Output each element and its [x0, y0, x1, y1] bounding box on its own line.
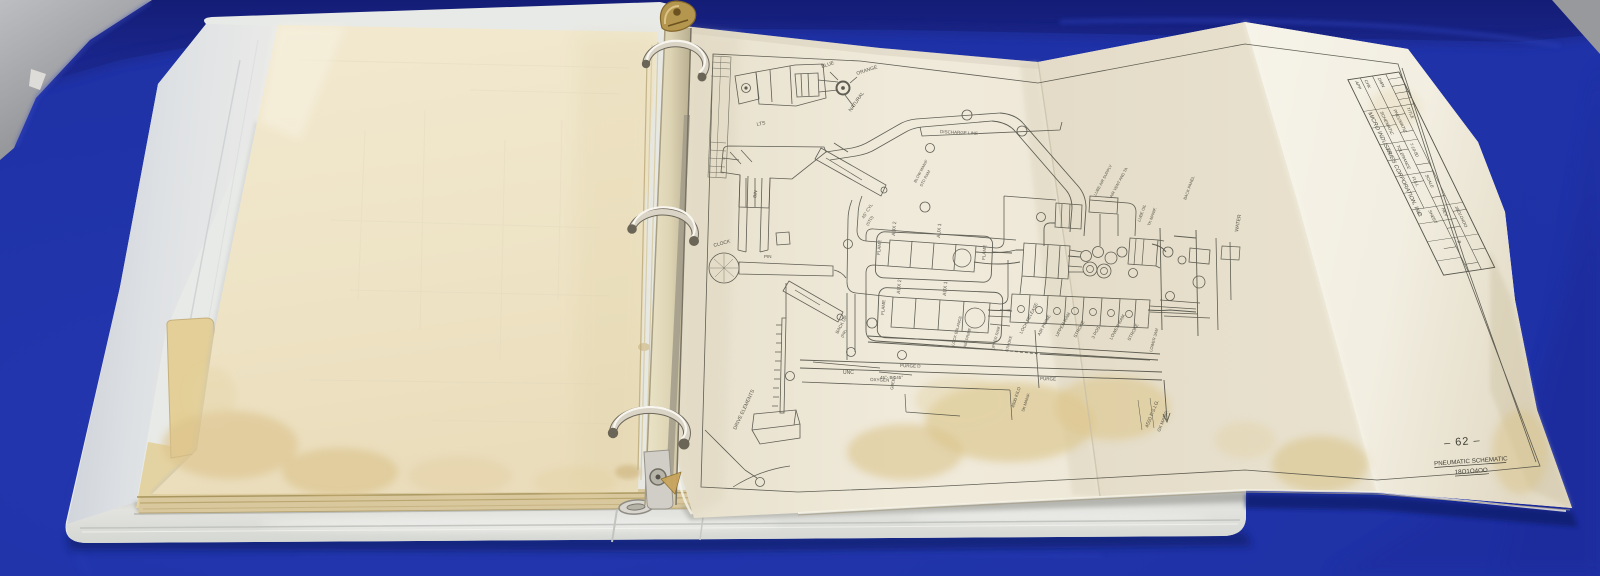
- svg-text:UNC: UNC: [843, 370, 854, 376]
- svg-text:AUX 2: AUX 2: [896, 279, 903, 294]
- svg-text:PIN: PIN: [764, 254, 772, 259]
- svg-text:PURGE: PURGE: [1040, 376, 1056, 382]
- svg-text:AUX 1: AUX 1: [936, 223, 943, 238]
- svg-text:AUX 1: AUX 1: [942, 281, 949, 296]
- svg-text:PURGE D: PURGE D: [900, 363, 921, 369]
- svg-text:AUX 2: AUX 2: [891, 221, 898, 236]
